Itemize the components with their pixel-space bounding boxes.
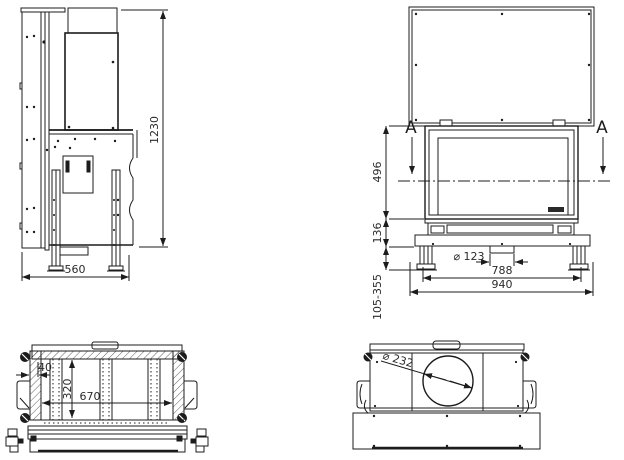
section-letter-right: A xyxy=(596,118,608,138)
section-marker-right: A xyxy=(596,118,608,174)
section-view-aa: 40 320 670 xyxy=(6,342,208,452)
side-ears xyxy=(17,381,197,409)
dim-label-depth: 560 xyxy=(65,263,86,276)
base-assembly-front xyxy=(415,219,590,253)
glass-window xyxy=(438,138,568,215)
bottom-frame xyxy=(6,420,208,452)
dim-inner-depth-320: 320 xyxy=(61,360,74,418)
technical-drawing-fireplace: 1230 560 A xyxy=(0,0,624,460)
foot xyxy=(109,266,123,270)
drawing-sheet: 1230 560 A xyxy=(0,0,624,460)
firebox-front xyxy=(425,126,578,219)
dim-label-height: 1230 xyxy=(148,116,161,144)
end-clamp-left xyxy=(6,429,36,452)
side-legs xyxy=(47,170,125,271)
hood-screws xyxy=(415,13,590,121)
top-view: ⌀ 232 xyxy=(353,341,540,449)
firebox-side xyxy=(49,130,137,255)
flue-duct xyxy=(65,8,118,130)
air-intake-collar xyxy=(490,246,514,253)
body-outline xyxy=(30,351,184,420)
dim-label-leg-range: 105-355 xyxy=(371,274,384,320)
end-clamp-right xyxy=(177,429,208,452)
body-screws xyxy=(374,361,519,407)
hatched-front-wall xyxy=(32,351,182,359)
dim-label-opening-height: 496 xyxy=(371,162,384,183)
brand-logo xyxy=(548,207,564,212)
front-view: A A ⌀ 123 xyxy=(371,7,612,320)
foot xyxy=(570,264,588,269)
dim-label-flue: ⌀ 232 xyxy=(381,349,415,370)
dim-label-wall: 40 xyxy=(38,361,52,374)
door-slot xyxy=(87,161,90,172)
dim-label-base-height: 136 xyxy=(371,223,384,244)
hood-panel xyxy=(409,7,594,126)
front-rail xyxy=(32,345,182,351)
dim-label-inner-width: 788 xyxy=(492,264,513,277)
dim-stack-left: 496 136 105-355 xyxy=(371,126,424,320)
latch xyxy=(440,120,452,126)
top-cap xyxy=(21,8,65,12)
latch xyxy=(553,120,565,126)
dim-label-inner-depth: 320 xyxy=(61,379,74,400)
rear-wavy-panel xyxy=(130,134,134,245)
dim-label-inner-width-section: 670 xyxy=(80,390,101,403)
firebox-rivets xyxy=(54,138,119,216)
dim-label-overall-width: 940 xyxy=(492,278,513,291)
back-convection-panel xyxy=(20,12,49,250)
side-view: 1230 560 xyxy=(20,8,168,281)
top-tab xyxy=(433,341,460,349)
door-slot xyxy=(66,161,69,172)
dim-height-1230: 1230 xyxy=(121,10,168,247)
bottom-bracket xyxy=(60,247,88,255)
section-letter-left: A xyxy=(405,118,417,138)
ash-drawer xyxy=(447,225,553,233)
foot xyxy=(49,266,63,270)
foot xyxy=(417,264,435,269)
base-plate-top xyxy=(353,413,540,449)
dim-label-intake: ⌀ 123 xyxy=(453,250,484,263)
